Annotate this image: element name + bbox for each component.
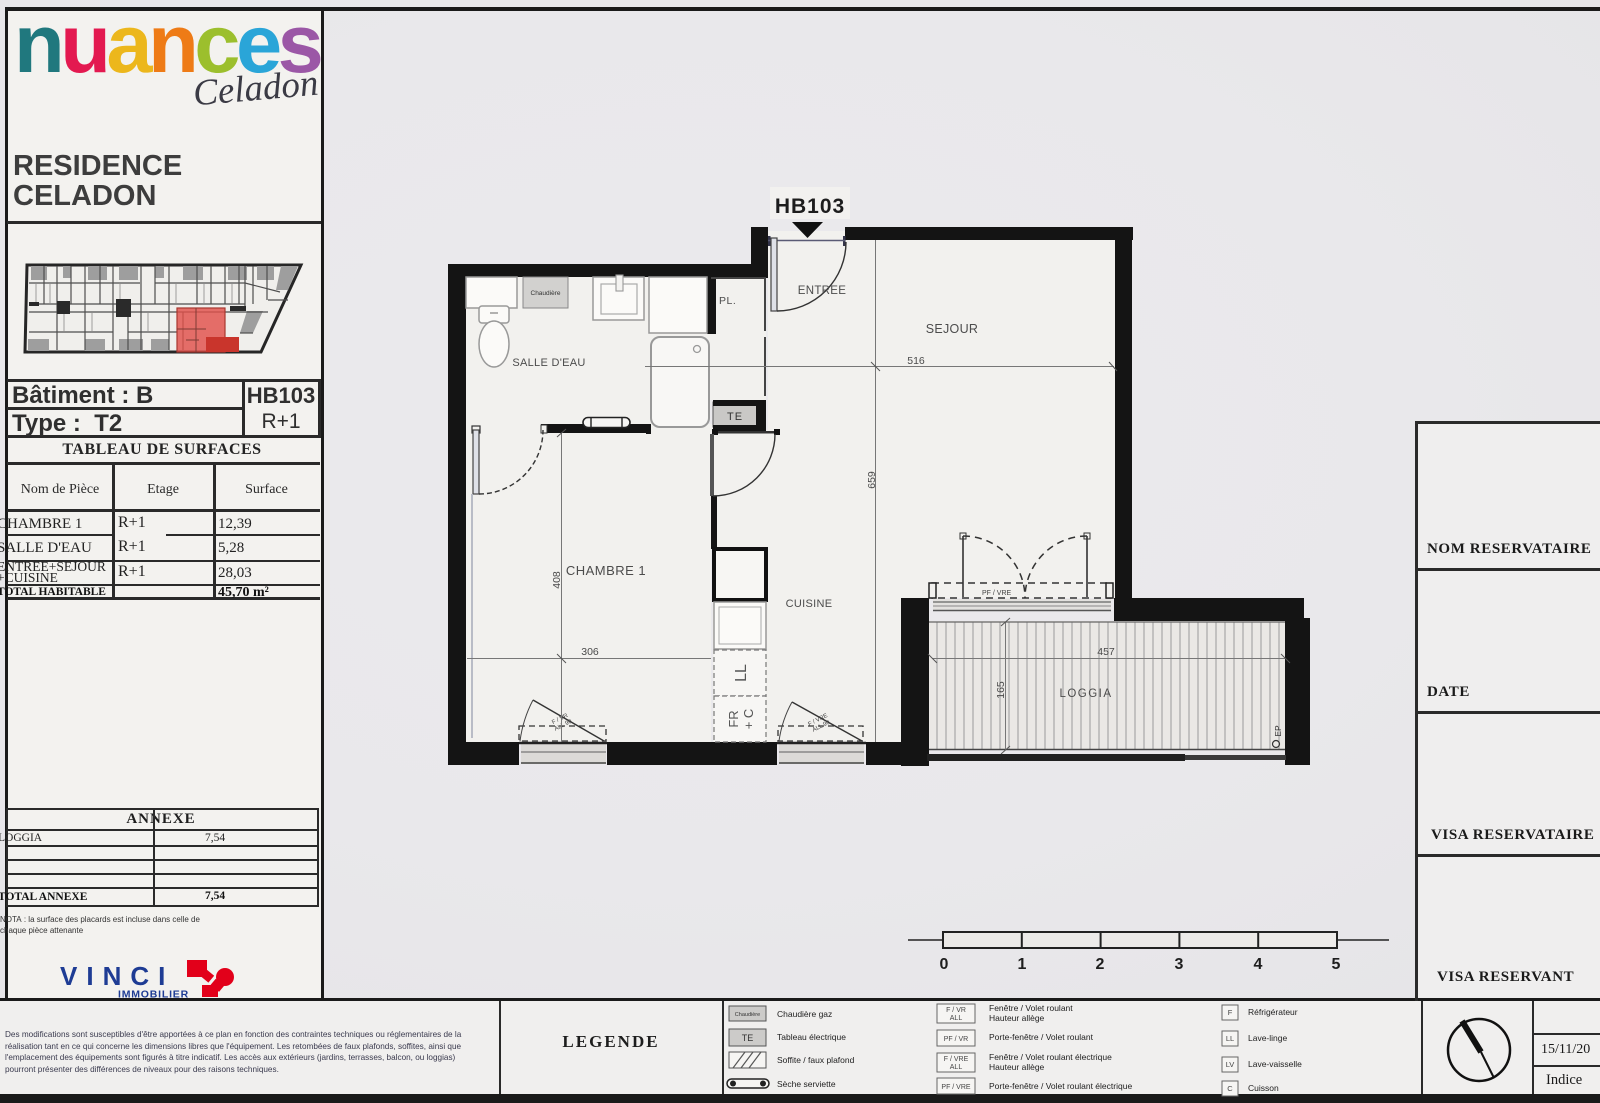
svg-text:SALLE D'EAU: SALLE D'EAU — [512, 357, 585, 369]
svg-text:+ C: + C — [741, 709, 756, 730]
svg-text:TE: TE — [742, 1033, 754, 1043]
svg-text:Tableau électrique: Tableau électrique — [777, 1032, 846, 1042]
svg-text:165: 165 — [995, 681, 1007, 699]
svg-text:ALL: ALL — [950, 1064, 963, 1071]
svg-text:PF / VRE: PF / VRE — [982, 590, 1012, 597]
svg-text:Lave-vaisselle: Lave-vaisselle — [1248, 1059, 1302, 1069]
svg-text:Soffite / faux plafond: Soffite / faux plafond — [777, 1055, 855, 1065]
svg-text:Hauteur allège: Hauteur allège — [989, 1062, 1045, 1072]
svg-text:2: 2 — [1096, 956, 1105, 973]
svg-text:Sèche serviette: Sèche serviette — [777, 1079, 836, 1089]
svg-text:Chaudière: Chaudière — [531, 290, 561, 297]
svg-text:ALL: ALL — [950, 1015, 963, 1022]
svg-text:Chaudière: Chaudière — [735, 1012, 760, 1018]
svg-text:Porte-fenêtre / Volet roulant: Porte-fenêtre / Volet roulant électrique — [989, 1081, 1132, 1091]
svg-text:ENTREE: ENTREE — [798, 285, 846, 297]
svg-text:457: 457 — [1097, 646, 1115, 658]
svg-text:LL: LL — [1226, 1034, 1234, 1043]
svg-text:1: 1 — [1018, 956, 1027, 973]
svg-text:Hauteur allège: Hauteur allège — [989, 1013, 1045, 1023]
svg-text:PF / VRE: PF / VRE — [941, 1084, 971, 1091]
svg-text:SEJOUR: SEJOUR — [926, 322, 979, 336]
svg-text:EP: EP — [1273, 725, 1283, 737]
svg-text:Porte-fenêtre / Volet roulant: Porte-fenêtre / Volet roulant — [989, 1032, 1094, 1042]
svg-text:VINCI: VINCI — [60, 961, 174, 991]
svg-text:C: C — [1227, 1084, 1233, 1093]
svg-text:5: 5 — [1332, 956, 1341, 973]
svg-text:TE: TE — [727, 411, 743, 423]
svg-text:LOGGIA: LOGGIA — [1059, 688, 1112, 700]
svg-text:Cuisson: Cuisson — [1248, 1083, 1279, 1093]
svg-text:659: 659 — [866, 471, 878, 489]
svg-text:Fenêtre / Volet roulant électr: Fenêtre / Volet roulant électrique — [989, 1052, 1112, 1062]
svg-text:408: 408 — [551, 571, 563, 589]
svg-text:516: 516 — [907, 355, 925, 367]
svg-text:F / VR: F / VR — [946, 1007, 966, 1014]
svg-text:F: F — [1228, 1008, 1233, 1017]
svg-text:FR: FR — [726, 710, 741, 727]
svg-text:306: 306 — [581, 646, 599, 658]
svg-text:CUISINE: CUISINE — [786, 598, 833, 610]
svg-text:0: 0 — [940, 956, 949, 973]
svg-text:HB103: HB103 — [775, 195, 845, 218]
svg-text:Réfrigérateur: Réfrigérateur — [1248, 1007, 1298, 1017]
svg-text:Chaudière gaz: Chaudière gaz — [777, 1009, 832, 1019]
svg-text:CHAMBRE 1: CHAMBRE 1 — [566, 563, 646, 578]
svg-text:Fenêtre / Volet roulant: Fenêtre / Volet roulant — [989, 1003, 1073, 1013]
svg-text:LV: LV — [1226, 1060, 1235, 1069]
svg-text:LL: LL — [733, 664, 750, 682]
svg-text:PF / VR: PF / VR — [944, 1036, 969, 1043]
svg-text:F / VRE: F / VRE — [944, 1056, 969, 1063]
svg-text:IMMOBILIER: IMMOBILIER — [118, 989, 189, 1001]
svg-text:PL.: PL. — [719, 295, 736, 307]
svg-text:4: 4 — [1254, 956, 1263, 973]
svg-text:3: 3 — [1175, 956, 1184, 973]
svg-text:Lave-linge: Lave-linge — [1248, 1033, 1287, 1043]
